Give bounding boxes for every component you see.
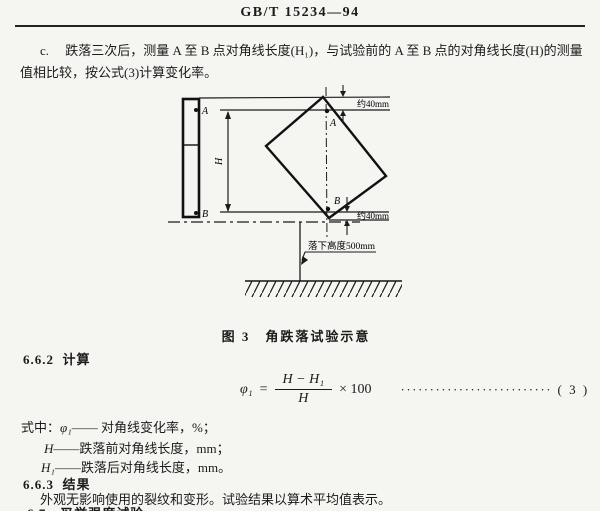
document-page: GB/T 15234—94 c. 跌落三次后，测量 A 至 B 点对角线长度(H… [0,0,600,511]
formula-lhs: φ₁ [240,382,253,398]
dim-bottom-arrow-down [344,206,350,212]
dim-bottom-arrow-up [344,220,350,226]
drop-leader-arrow [301,256,308,265]
where-dash-h1: —— [55,460,81,475]
point-a-left-label: A [201,106,209,117]
where-prefix: 式中： [21,420,60,435]
section-67-partial: 6.7 叉举强度试验 [27,503,144,511]
point-b-diamond-dot [326,207,330,211]
standard-number-header: GB/T 15234—94 [0,5,600,21]
dim-top-arrow-down [340,91,346,97]
paragraph-c-line2: 值相比较，按公式(3)计算变化率。 [20,62,217,81]
h-dimension-label: H [214,157,225,166]
point-b-left-label: B [202,209,208,220]
section-662-number: 6.6.2 [23,352,54,367]
dim-bottom-label: 约40mm [357,210,389,221]
where-symbol-phi: φ₁ [60,420,72,435]
formula-multiplier: × 100 [339,382,371,398]
dim-top-arrow-up [340,110,346,116]
where-line-h: H——跌落前对角线长度，mm； [44,438,230,457]
h-arrow-top [225,111,231,119]
drop-height-label: 落下高度500mm [308,240,376,252]
pallet-side-view [183,99,199,217]
formula-3: φ₁ = H − H₁ H × 100 ····················… [240,372,589,407]
point-b-diamond-label: B [334,196,340,207]
figure-caption: 图 3 角跌落试验示意 [0,326,592,345]
where-symbol-h1: H₁ [41,460,55,475]
formula-number: ( 3 ) [557,382,589,398]
h-arrow-bottom [225,204,231,212]
where-dash-phi: —— [72,420,98,435]
apex-level-line [199,97,390,98]
header-rule [15,25,585,27]
point-a-diamond-dot [325,109,329,113]
where-dash-h: —— [53,441,79,456]
point-b-left-dot [194,211,198,215]
formula-numerator: H − H₁ [275,372,333,390]
point-a-diamond-label: A [329,118,337,129]
section-662-heading: 6.6.2 计算 [23,349,91,368]
where-desc-h1: 跌落后对角线长度，mm。 [81,460,231,475]
dim-top-label: 约40mm [357,98,389,109]
section-662-title: 计算 [63,352,91,367]
point-a-left-dot [194,108,198,112]
where-symbol-h: H [44,441,53,456]
where-desc-h: 跌落前对角线长度，mm； [79,441,229,456]
formula-leader-dots: ········································… [400,382,550,398]
paragraph-c-line1: c. 跌落三次后，测量 A 至 B 点对角线长度(H₁)，与试验前的 A 至 B… [40,40,583,59]
formula-equals: = [260,382,268,398]
formula-denominator: H [298,390,308,407]
ground-hatching [245,281,402,297]
corner-drop-test-diagram: A B H A B 约40mm 约40mm 落下高度 [150,85,490,320]
formula-fraction: H − H₁ H [275,372,333,407]
where-desc-phi: 对角线变化率，%； [101,420,216,435]
where-line-phi: 式中：φ₁—— 对角线变化率，%； [21,417,216,436]
